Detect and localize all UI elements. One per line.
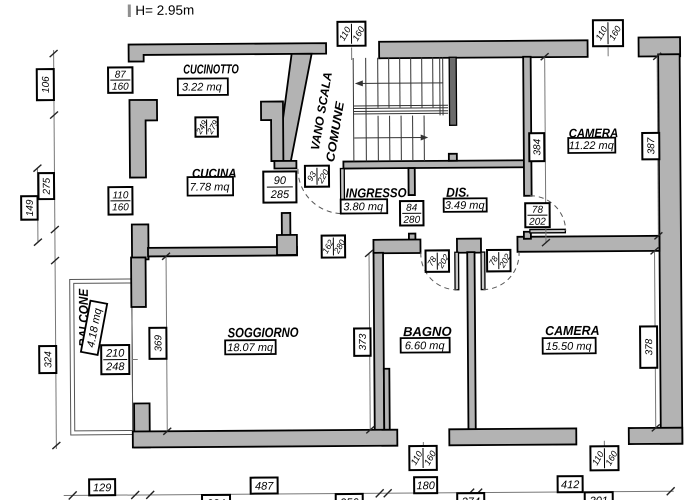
svg-text:106: 106 <box>41 76 52 93</box>
svg-text:373: 373 <box>358 333 369 350</box>
svg-text:301: 301 <box>590 495 608 500</box>
svg-text:487: 487 <box>255 481 274 493</box>
svg-text:387: 387 <box>646 137 657 154</box>
svg-text:INGRESSO: INGRESSO <box>346 185 407 200</box>
svg-text:SOGGIORNO: SOGGIORNO <box>228 325 300 340</box>
svg-text:384: 384 <box>532 138 543 155</box>
svg-text:149: 149 <box>25 199 36 216</box>
svg-text:275: 275 <box>42 177 53 195</box>
svg-text:3.80 mq: 3.80 mq <box>343 201 384 213</box>
svg-text:160: 160 <box>112 202 129 213</box>
svg-text:6.60 mq: 6.60 mq <box>405 340 446 352</box>
svg-text:412: 412 <box>561 479 579 491</box>
svg-text:378: 378 <box>644 338 655 355</box>
svg-text:369: 369 <box>153 335 164 352</box>
svg-text:7.78 mq: 7.78 mq <box>190 181 231 193</box>
svg-text:129: 129 <box>93 482 111 494</box>
svg-text:87: 87 <box>115 70 127 81</box>
svg-text:15.50 mq: 15.50 mq <box>546 341 593 353</box>
svg-text:CUCINOTTO: CUCINOTTO <box>183 61 239 76</box>
svg-text:180: 180 <box>416 480 435 492</box>
svg-text:18.07 mq: 18.07 mq <box>227 342 274 354</box>
svg-text:11.22 mq: 11.22 mq <box>569 140 615 152</box>
svg-text:BAGNO: BAGNO <box>403 324 452 339</box>
svg-text:78: 78 <box>532 205 544 216</box>
svg-text:160: 160 <box>112 82 129 93</box>
svg-text:3.22 mq: 3.22 mq <box>182 81 223 93</box>
svg-text:324: 324 <box>43 351 54 368</box>
svg-text:H= 2.95m: H= 2.95m <box>135 3 194 18</box>
svg-text:84: 84 <box>406 203 418 214</box>
svg-text:210: 210 <box>105 348 125 360</box>
svg-text:110: 110 <box>112 190 128 201</box>
svg-text:374: 374 <box>462 496 480 500</box>
svg-text:285: 285 <box>270 189 290 201</box>
svg-text:280: 280 <box>402 215 420 226</box>
svg-text:3.49 mq: 3.49 mq <box>445 200 486 212</box>
svg-text:202: 202 <box>528 217 546 228</box>
svg-text:90: 90 <box>274 175 287 187</box>
svg-text:CAMERA: CAMERA <box>545 323 600 338</box>
svg-text:248: 248 <box>105 361 125 373</box>
